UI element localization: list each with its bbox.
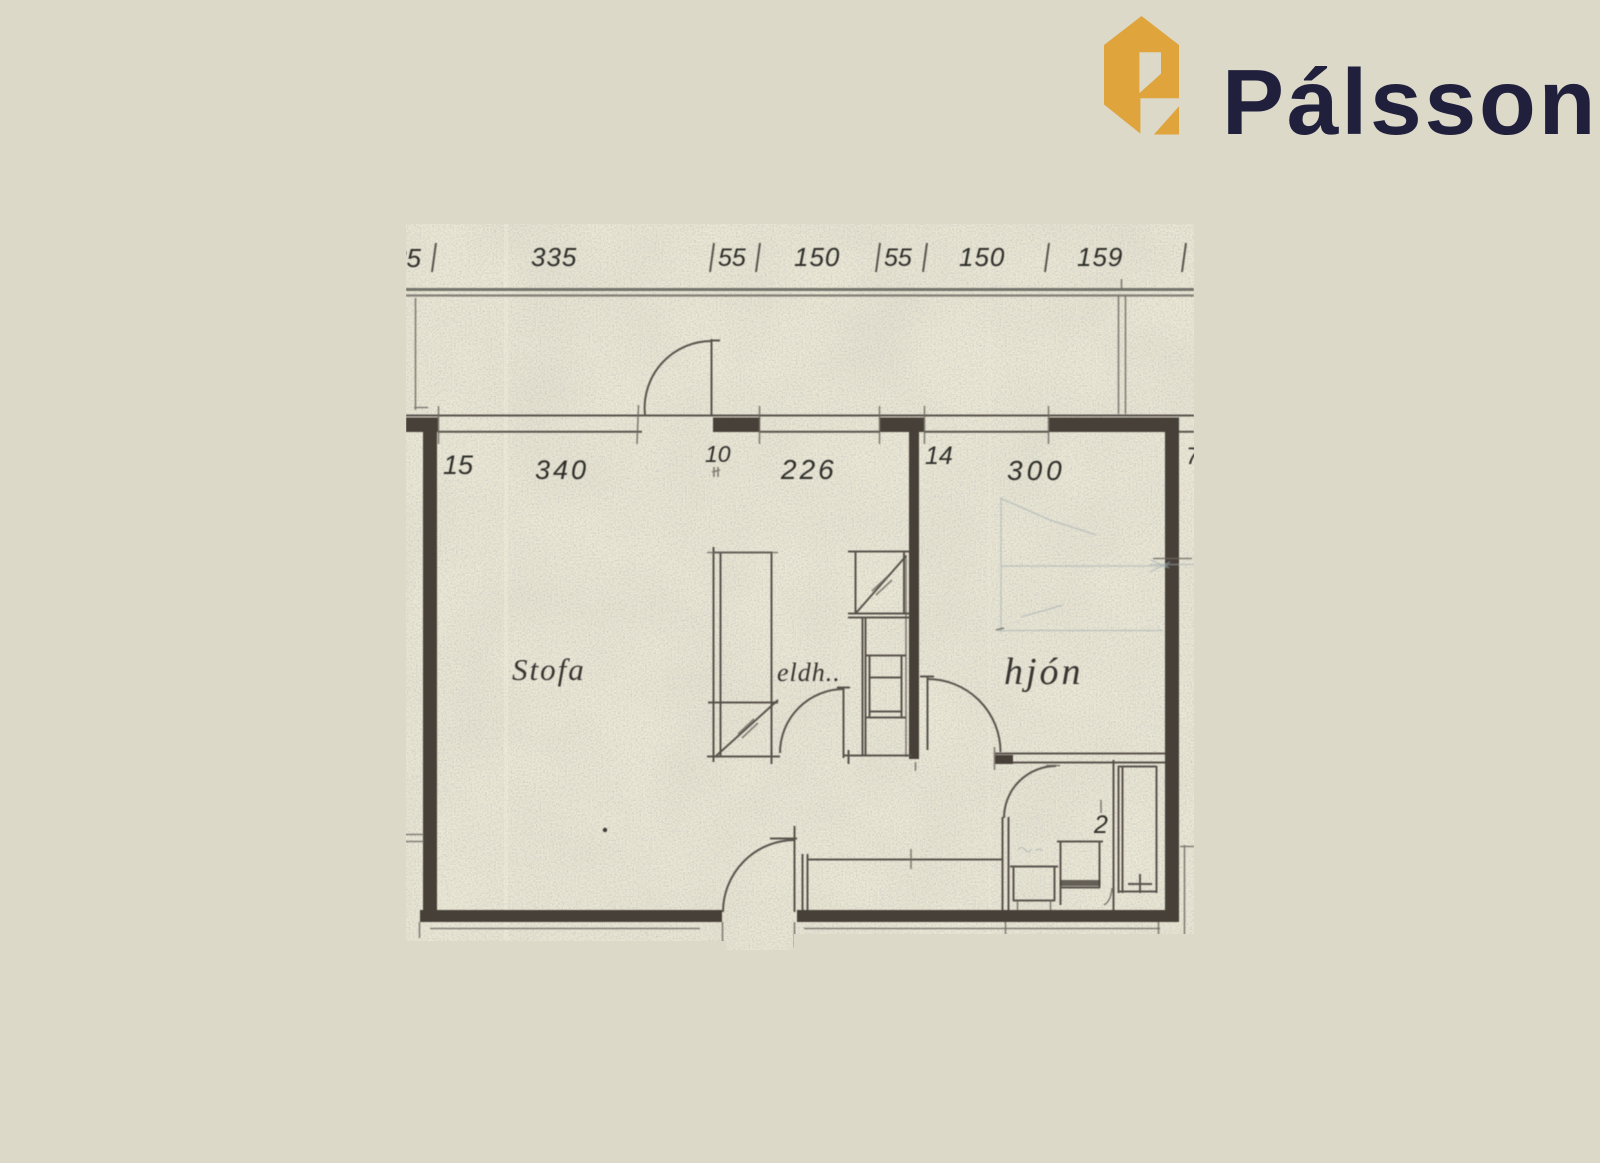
svg-text:340: 340: [535, 455, 589, 485]
svg-text:150: 150: [959, 242, 1005, 272]
svg-text:55: 55: [884, 244, 912, 272]
svg-text:2: 2: [1093, 811, 1108, 839]
svg-text:eldh..: eldh..: [777, 658, 841, 687]
svg-text:hjón: hjón: [1004, 651, 1084, 693]
svg-text:Stofa: Stofa: [512, 652, 586, 687]
svg-text:55: 55: [718, 244, 746, 272]
svg-text:10: 10: [705, 441, 731, 467]
svg-text:300: 300: [1007, 455, 1066, 486]
svg-text:Pálsson: Pálsson: [1222, 50, 1598, 154]
svg-text:226: 226: [780, 454, 837, 485]
svg-text:335: 335: [531, 242, 577, 272]
svg-text:14: 14: [925, 442, 953, 470]
svg-text:15: 15: [443, 450, 474, 480]
svg-text:159: 159: [1077, 242, 1123, 272]
svg-text:150: 150: [794, 242, 840, 272]
